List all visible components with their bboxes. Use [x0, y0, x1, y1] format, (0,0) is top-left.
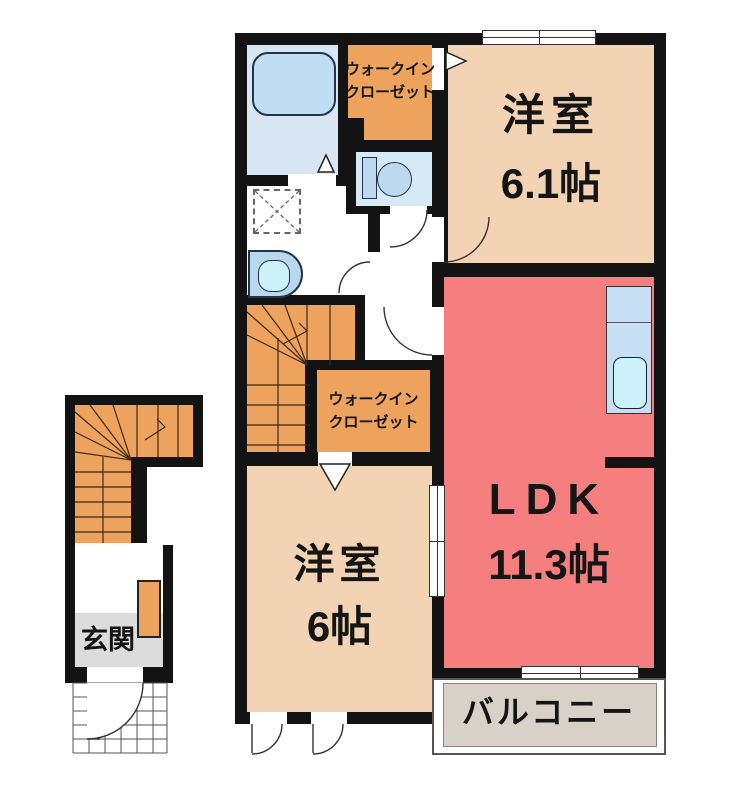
wic-top-line1: ウォークイン — [345, 58, 435, 81]
toilet-door-opening — [390, 206, 427, 214]
floorplan: ウォークイン クローゼット 洋室 6.1帖 LDK 11.3帖 ウォークイン ク… — [0, 0, 739, 800]
ldk-door-opening — [432, 307, 444, 355]
bedroom-6-size: 6帖 — [247, 600, 432, 654]
washbasin — [248, 250, 303, 298]
toilet-bowl — [377, 162, 412, 197]
balcony-label: バルコニー — [432, 690, 666, 736]
wic-mid-label: ウォークイン クローゼット — [317, 384, 430, 438]
entrance-door-swing — [87, 683, 143, 739]
stairs-main-column — [247, 365, 310, 452]
wic-mid-top-wall — [317, 360, 430, 370]
washing-machine-space — [253, 189, 301, 234]
washbasin-bowl — [258, 260, 290, 292]
kitchen-sink — [613, 357, 647, 409]
bedroom-6-name: 洋室 — [247, 540, 432, 590]
wic-mid-line2: クローゼット — [328, 411, 418, 434]
bedroom-61-door-opening — [432, 217, 444, 262]
stairs-main-top — [247, 305, 355, 365]
stairs-left-column — [75, 457, 131, 543]
closet-notch-wall — [338, 118, 364, 140]
toilet-top-wall — [346, 140, 432, 152]
bedroom-61-size: 6.1帖 — [448, 158, 654, 210]
bathroom-door-opening — [288, 174, 336, 186]
wic-mid-left-wall — [305, 360, 317, 464]
window-top — [482, 30, 596, 45]
wic-mid-line1: ウォークイン — [328, 388, 418, 411]
ldk-name: LDK — [444, 474, 654, 526]
toilet-left-wall — [346, 152, 356, 214]
kitchen-counter — [606, 286, 652, 414]
corridor-stub-wall — [368, 214, 380, 252]
wic-mid-opening — [318, 452, 352, 466]
bedroom-6-window-opening-1 — [250, 712, 287, 724]
wic-top-label: ウォークイン クローゼット — [340, 56, 440, 106]
corridor-floor — [365, 295, 432, 360]
sliding-door-tick — [430, 541, 444, 542]
stairs-left-top — [75, 405, 193, 457]
toilet-tank — [362, 157, 377, 199]
bathtub — [252, 52, 336, 116]
bedroom-6-window-opening-2 — [311, 712, 347, 724]
entrance-tile-grid — [73, 683, 167, 753]
entrance-label: 玄関 — [73, 620, 143, 660]
wic-top-line2: クローゼット — [345, 81, 435, 104]
bedroom-6-door-arc-2 — [313, 724, 343, 754]
ldk-size: 11.3帖 — [444, 538, 654, 592]
bedroom-61-name: 洋室 — [448, 92, 654, 142]
kitchen-stub-wall — [605, 457, 666, 468]
entrance-door-opening — [87, 667, 143, 683]
bedroom-61-floor — [448, 45, 654, 263]
bedroom-6-door-arc-1 — [252, 724, 282, 754]
